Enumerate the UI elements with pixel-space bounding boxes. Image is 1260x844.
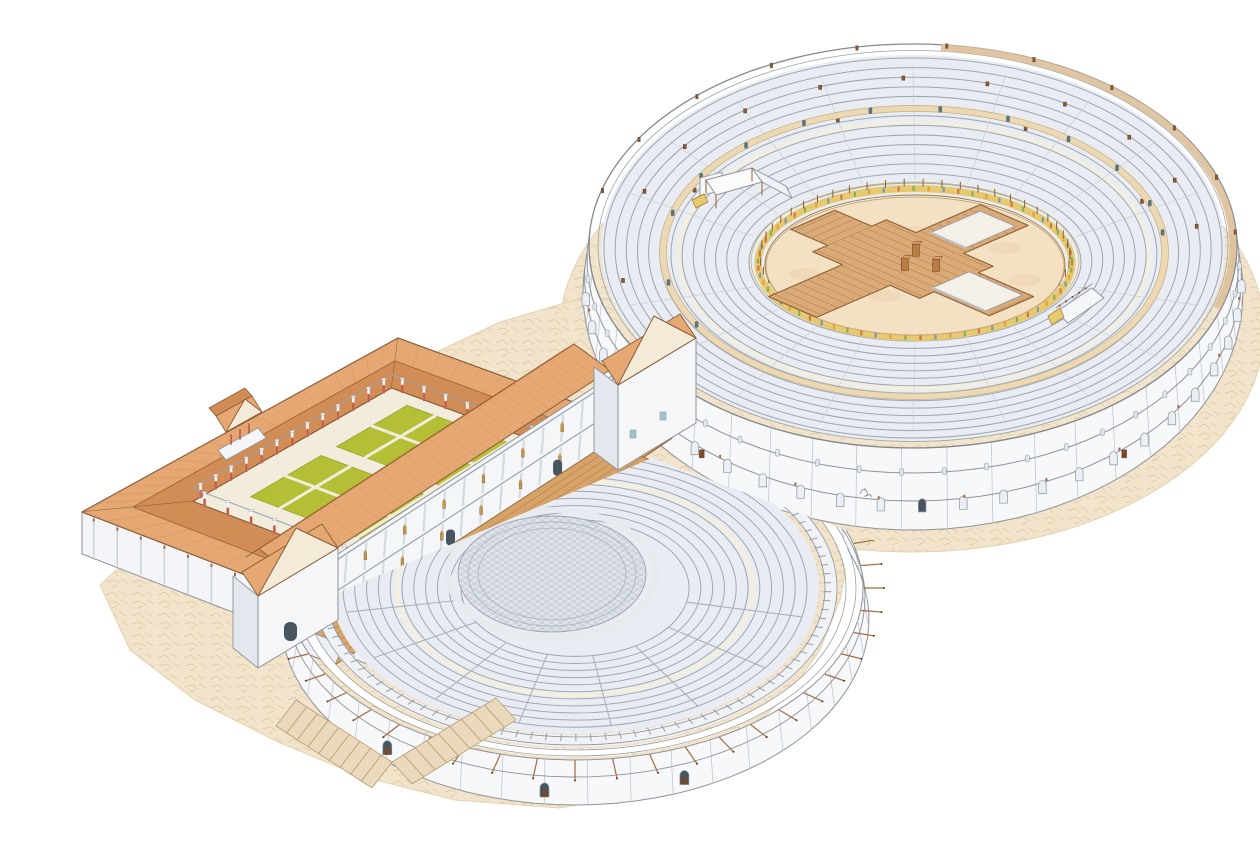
column-capital: [226, 500, 230, 502]
lift-crate: [901, 259, 908, 271]
mast-tip: [491, 772, 493, 774]
velarium-mast: [862, 564, 882, 566]
balteus-door: [744, 142, 748, 148]
wall-bracket: [1218, 354, 1220, 357]
upper-story-window: [1233, 290, 1237, 297]
column-capital: [275, 439, 279, 441]
fresco-panel: [767, 287, 769, 292]
mast-tip: [732, 751, 734, 753]
wall-bracket: [719, 455, 721, 458]
arcade-door: [1122, 450, 1127, 458]
wall-bracket: [1118, 448, 1120, 451]
fresco-panel: [1022, 206, 1024, 211]
frons-statue: [521, 450, 524, 457]
fresco-panel: [846, 328, 848, 333]
mast-tip: [883, 587, 885, 589]
arcade-arch: [1110, 452, 1118, 465]
fresco-panel: [1046, 301, 1048, 306]
pilaster-bracket: [210, 564, 212, 567]
upper-story-window: [738, 436, 742, 443]
fresco-panel: [1064, 282, 1066, 287]
vomitorium-bracket: [1063, 102, 1066, 106]
fresco-panel: [759, 273, 761, 278]
fresco-panel: [1068, 275, 1070, 280]
signature-dot: [864, 488, 866, 490]
balteus-door: [667, 279, 671, 285]
frons-statue-head: [559, 454, 562, 457]
velarium-socket: [601, 188, 603, 193]
frons-statue: [364, 553, 367, 560]
column-capital: [203, 492, 207, 494]
arcade-arch: [582, 292, 590, 305]
fresco-panel: [1071, 257, 1073, 262]
arcade-arch: [1224, 336, 1232, 349]
upper-story-window: [586, 275, 590, 282]
fresco-panel: [809, 316, 811, 321]
theater-wall-door-leaf: [682, 778, 687, 785]
frons-statue: [482, 476, 485, 483]
mast-tip: [796, 719, 798, 721]
parascaenium-door: [284, 622, 297, 641]
column-capital: [305, 422, 309, 424]
fresco-panel: [762, 280, 764, 285]
mast-tip: [880, 611, 882, 613]
upper-story-window: [1101, 429, 1105, 436]
velarium-socket: [1215, 175, 1217, 180]
frons-statue-head: [403, 525, 406, 528]
velarium-socket: [1033, 57, 1035, 62]
column-capital: [444, 394, 448, 396]
vomitorium-bracket: [1128, 135, 1131, 139]
fresco-panel: [827, 198, 829, 203]
wall-bracket: [794, 483, 796, 486]
pilaster-bracket: [140, 537, 142, 540]
arcade-door: [699, 450, 704, 458]
mast-tip: [766, 736, 768, 738]
vomitorium-bracket: [1173, 178, 1176, 182]
tower-window: [630, 430, 636, 438]
mast-tip: [305, 680, 307, 682]
mast-tip: [352, 719, 354, 721]
vomitorium-bracket: [1195, 224, 1198, 228]
vomitorium-bracket: [819, 85, 822, 89]
upper-story-window: [1025, 455, 1029, 462]
pilaster-bracket: [93, 519, 95, 522]
column-capital: [260, 448, 264, 450]
upper-story-window: [593, 303, 597, 310]
arcade-arch: [1141, 433, 1149, 446]
fresco-panel: [785, 218, 787, 223]
arcade-arch: [1039, 480, 1047, 493]
wall-bracket: [588, 309, 590, 312]
fresco-panel: [971, 191, 973, 196]
upper-story-window: [1188, 368, 1192, 375]
balteus-door: [1161, 229, 1165, 235]
column-capital: [290, 430, 294, 432]
column-capital: [214, 474, 218, 476]
mast-tip: [860, 658, 862, 660]
frons-statue: [403, 527, 406, 534]
column-capital: [400, 378, 404, 380]
column-capital: [465, 402, 469, 404]
mast-tip: [873, 635, 875, 637]
upper-story-window: [1163, 391, 1167, 398]
fresco-panel: [957, 189, 959, 194]
fresco-panel: [860, 331, 862, 336]
vomitorium-bracket: [643, 189, 646, 193]
upper-story-window: [1237, 262, 1241, 269]
column-capital: [367, 387, 371, 389]
frons-statue: [443, 501, 446, 508]
velarium-socket: [1111, 85, 1113, 90]
fresco-panel: [757, 259, 759, 264]
fresco-panel: [934, 334, 936, 339]
fresco-panel: [1059, 288, 1061, 293]
arcade-arch: [1168, 412, 1176, 425]
velarium-socket: [696, 94, 698, 99]
wall-bracket: [1045, 478, 1047, 481]
column-capital: [342, 545, 346, 547]
fresco-panel: [770, 231, 772, 236]
balteus-door: [869, 107, 873, 113]
frons-statue-head: [519, 479, 522, 482]
velarium-socket: [946, 44, 948, 49]
fresco-panel: [794, 213, 796, 218]
column-capital: [229, 465, 233, 467]
fresco-panel: [833, 324, 835, 329]
arcade-arch: [836, 493, 844, 506]
balteus-door: [695, 321, 699, 327]
fresco-panel: [840, 195, 842, 200]
roman-theatre-amphitheatre-illustration: [0, 0, 1260, 844]
fresco-panel: [1042, 217, 1044, 222]
fresco-panel: [943, 187, 945, 192]
fresco-panel: [985, 194, 987, 199]
fresco-panel: [897, 186, 899, 191]
frons-statue-head: [522, 448, 525, 451]
frons-statue: [519, 482, 522, 489]
mast-tip: [616, 778, 618, 780]
column-capital: [351, 396, 355, 398]
fresco-panel: [815, 203, 817, 208]
frons-statue-head: [482, 473, 485, 476]
arcade-arch: [1191, 388, 1199, 401]
frons-statue: [480, 507, 483, 514]
arcade-arch: [759, 474, 767, 487]
sand-patch: [989, 242, 1021, 254]
vomitorium-bracket: [1141, 199, 1144, 203]
rail-post: [1059, 305, 1061, 307]
upper-story-window: [984, 463, 988, 470]
amphitheater: [582, 44, 1245, 530]
frons-statue: [440, 533, 443, 540]
wall-bracket: [1238, 297, 1240, 300]
frons-statue: [561, 425, 564, 432]
upper-story-window: [605, 330, 609, 337]
pilaster-bracket: [187, 555, 189, 558]
balteus-door: [802, 120, 806, 126]
fresco-panel: [1057, 230, 1059, 235]
fresco-panel: [949, 333, 951, 338]
rail-post: [1065, 300, 1067, 302]
fresco-panel: [1070, 268, 1072, 273]
rail-post: [1071, 296, 1073, 298]
mast-tip: [843, 680, 845, 682]
fresco-panel: [919, 335, 921, 340]
arcade-arch: [691, 442, 699, 455]
balteus-door: [1067, 136, 1071, 142]
fresco-panel: [889, 334, 891, 339]
arcade-arch: [1000, 490, 1008, 503]
velarium-socket: [856, 46, 858, 51]
column-capital: [199, 483, 203, 485]
fresco-panel: [964, 331, 966, 336]
pilaster-bracket: [116, 528, 118, 531]
fresco-panel: [1027, 312, 1029, 317]
upper-story-window: [942, 468, 946, 475]
arcade-arch: [797, 485, 805, 498]
balteus-door: [671, 210, 675, 216]
mast-tip: [327, 700, 329, 702]
vomitorium-bracket: [621, 278, 624, 282]
wall-bracket: [1177, 405, 1179, 408]
balteus-door: [938, 106, 942, 112]
arcade-arch: [724, 459, 732, 472]
fresco-panel: [1004, 322, 1006, 327]
velarium-socket: [770, 63, 772, 68]
mast-tip: [821, 700, 823, 702]
vomitorium-bracket: [683, 144, 686, 148]
column-capital: [321, 413, 325, 415]
fresco-panel: [1053, 295, 1055, 300]
wall-bracket: [878, 496, 880, 499]
vomitorium-bracket: [744, 109, 747, 113]
frons-statue-head: [443, 499, 446, 502]
frons-statue-head: [364, 550, 367, 553]
illustration-canvas: [0, 0, 1260, 844]
vomitorium-bracket: [902, 76, 905, 80]
fresco-panel: [875, 333, 877, 338]
arcade-arch: [588, 321, 596, 334]
rail-post: [1078, 292, 1080, 294]
mast-tip: [382, 736, 384, 738]
mast-tip: [532, 778, 534, 780]
fresco-panel: [757, 266, 759, 271]
mast-tip: [657, 772, 659, 774]
column-capital: [422, 386, 426, 388]
theater-wall-door-leaf: [542, 790, 547, 797]
column-capital: [244, 457, 248, 459]
column-capital: [249, 509, 253, 511]
rail-post: [1084, 287, 1086, 289]
frons-statue-head: [561, 422, 564, 425]
gallery-column: [821, 609, 828, 610]
sand-patch: [1009, 274, 1041, 286]
orchestra-floor: [458, 516, 646, 632]
upper-story-window: [1064, 444, 1068, 451]
fresco-panel: [1011, 202, 1013, 207]
fresco-panel: [883, 187, 885, 192]
lift-crate: [933, 259, 940, 271]
pilaster-bracket: [234, 573, 236, 576]
gallery-column: [821, 565, 828, 566]
upper-story-window: [1208, 344, 1212, 351]
upper-story-window: [776, 449, 780, 456]
upper-story-window: [1134, 411, 1138, 418]
fresco-panel: [1032, 212, 1034, 217]
balteus-door: [1115, 165, 1119, 171]
upper-story-window: [900, 468, 904, 475]
fresco-panel: [928, 186, 930, 191]
mast-tip: [696, 763, 698, 765]
upper-story-window: [703, 420, 707, 427]
fresco-panel: [1016, 317, 1018, 322]
frons-statue-head: [480, 505, 483, 508]
mast-tip: [574, 780, 576, 782]
velarium-socket: [1234, 230, 1236, 235]
fresco-panel: [868, 189, 870, 194]
balteus-door: [1148, 200, 1152, 206]
arcade-arch: [1210, 363, 1218, 376]
fresco-panel: [798, 311, 800, 316]
fresco-panel: [904, 335, 906, 340]
vomitorium-bracket: [986, 82, 989, 86]
frons-statue: [401, 559, 404, 566]
column-capital: [336, 404, 340, 406]
fresco-panel: [991, 325, 993, 330]
balteus-door: [1006, 116, 1010, 122]
parascaenium-side: [594, 367, 618, 470]
arcade-arch: [959, 496, 967, 509]
fresco-panel: [978, 329, 980, 334]
tower-window: [660, 412, 666, 420]
wall-bracket: [963, 495, 965, 498]
arcade-arch: [1238, 280, 1246, 293]
theater-wall-door-leaf: [385, 748, 390, 755]
frons-statue-head: [440, 531, 443, 534]
arcade-arch: [1234, 308, 1242, 321]
fresco-panel: [1050, 223, 1052, 228]
upper-story-window: [857, 466, 861, 473]
upper-story-window: [816, 459, 820, 466]
fresco-panel: [1037, 307, 1039, 312]
fresco-panel: [804, 207, 806, 212]
fresco-panel: [777, 224, 779, 229]
fresco-panel: [998, 198, 1000, 203]
mast-tip: [452, 763, 454, 765]
fresco-panel: [854, 192, 856, 197]
fresco-panel: [913, 186, 915, 191]
column-capital: [382, 378, 386, 380]
velarium-socket: [638, 137, 640, 142]
mast-tip: [880, 563, 882, 565]
pilaster-bracket: [163, 546, 165, 549]
mast-tip: [288, 658, 290, 660]
arena-entrance-arch: [918, 499, 926, 512]
arcade-arch: [877, 498, 885, 511]
upper-story-window: [1223, 317, 1227, 324]
frons-statue-head: [401, 556, 404, 559]
column-capital: [272, 518, 276, 520]
fresco-panel: [821, 320, 823, 325]
lift-crate: [912, 244, 919, 256]
velarium-socket: [1173, 126, 1175, 131]
arcade-arch: [1075, 468, 1083, 481]
